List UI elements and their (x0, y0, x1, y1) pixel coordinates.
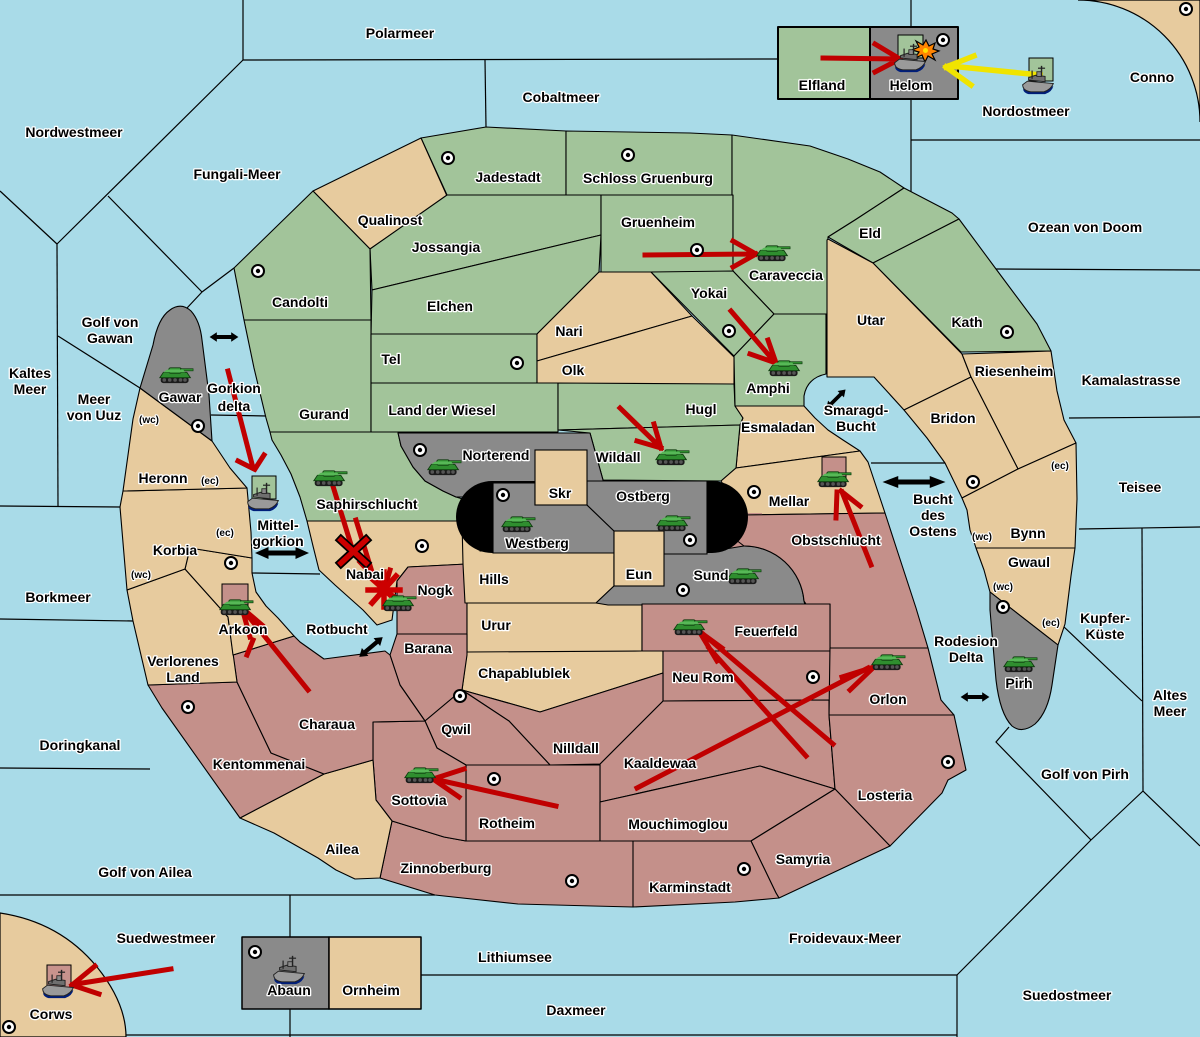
svg-text:Tel: Tel (381, 351, 400, 367)
svg-text:Bridon: Bridon (930, 410, 975, 426)
svg-text:Elchen: Elchen (427, 298, 473, 314)
svg-text:des: des (921, 507, 945, 523)
svg-text:Bynn: Bynn (1011, 525, 1046, 541)
svg-text:Norterend: Norterend (463, 447, 530, 463)
svg-text:Wildall: Wildall (596, 449, 641, 465)
svg-text:delta: delta (218, 398, 251, 414)
svg-text:Suedwestmeer: Suedwestmeer (117, 930, 216, 946)
svg-text:Gwaul: Gwaul (1008, 554, 1050, 570)
svg-text:Nari: Nari (555, 323, 582, 339)
svg-text:Daxmeer: Daxmeer (546, 1002, 606, 1018)
svg-text:Nabai: Nabai (346, 566, 384, 582)
svg-text:Saphirschlucht: Saphirschlucht (316, 496, 417, 512)
svg-text:Meer: Meer (14, 381, 47, 397)
svg-text:Esmaladan: Esmaladan (741, 419, 815, 435)
svg-text:Mellar: Mellar (769, 493, 810, 509)
svg-text:Ornheim: Ornheim (342, 982, 400, 998)
svg-text:Helom: Helom (890, 77, 933, 93)
svg-text:von Uuz: von Uuz (67, 407, 121, 423)
svg-text:Kath: Kath (951, 314, 982, 330)
svg-text:Barana: Barana (404, 640, 452, 656)
svg-text:Golf von Pirh: Golf von Pirh (1041, 766, 1129, 782)
svg-text:Kamalastrasse: Kamalastrasse (1082, 372, 1181, 388)
svg-text:Gorkion: Gorkion (207, 380, 261, 396)
svg-text:Mouchimoglou: Mouchimoglou (628, 816, 728, 832)
svg-text:Suedostmeer: Suedostmeer (1023, 987, 1112, 1003)
svg-text:Meer: Meer (1154, 703, 1187, 719)
svg-text:Nordostmeer: Nordostmeer (982, 103, 1070, 119)
svg-text:Ailea: Ailea (325, 841, 359, 857)
svg-text:Samyria: Samyria (776, 851, 831, 867)
svg-text:Cobaltmeer: Cobaltmeer (522, 89, 600, 105)
svg-text:Heronn: Heronn (139, 470, 188, 486)
svg-text:Ostens: Ostens (909, 523, 957, 539)
svg-text:Riesenheim: Riesenheim (975, 363, 1054, 379)
svg-text:Froidevaux-Meer: Froidevaux-Meer (789, 930, 902, 946)
svg-text:Rotbucht: Rotbucht (306, 621, 368, 637)
svg-text:Urur: Urur (481, 617, 511, 633)
svg-text:Bucht: Bucht (836, 418, 876, 434)
svg-text:Abaun: Abaun (267, 982, 311, 998)
svg-text:Rotheim: Rotheim (479, 815, 535, 831)
svg-text:(wc): (wc) (131, 570, 151, 581)
svg-text:Schloss Gruenburg: Schloss Gruenburg (583, 170, 713, 186)
svg-text:Sund: Sund (694, 567, 729, 583)
svg-text:Pirh: Pirh (1005, 675, 1032, 691)
svg-text:Gruenheim: Gruenheim (621, 214, 695, 230)
svg-text:Conno: Conno (1130, 69, 1174, 85)
svg-text:Gawar: Gawar (159, 389, 202, 405)
svg-text:Land der Wiesel: Land der Wiesel (388, 402, 495, 418)
svg-text:(ec): (ec) (201, 476, 219, 487)
svg-text:Sottovia: Sottovia (391, 792, 446, 808)
svg-text:Hills: Hills (479, 571, 509, 587)
svg-text:Hugl: Hugl (685, 401, 716, 417)
svg-text:Kaltes: Kaltes (9, 365, 51, 381)
svg-text:Doringkanal: Doringkanal (40, 737, 121, 753)
svg-text:Corws: Corws (30, 1006, 73, 1022)
svg-text:Eld: Eld (859, 225, 881, 241)
svg-text:Zinnoberburg: Zinnoberburg (401, 860, 492, 876)
svg-text:(wc): (wc) (972, 532, 992, 543)
svg-text:Borkmeer: Borkmeer (25, 589, 91, 605)
svg-text:Karminstadt: Karminstadt (649, 879, 731, 895)
svg-text:Arkoon: Arkoon (219, 621, 268, 637)
svg-text:Obstschlucht: Obstschlucht (791, 532, 881, 548)
svg-text:Jossangia: Jossangia (412, 239, 481, 255)
svg-text:Kaaldewaa: Kaaldewaa (624, 755, 697, 771)
svg-text:Mittel-: Mittel- (257, 517, 299, 533)
svg-text:Smaragd-: Smaragd- (824, 402, 889, 418)
svg-text:Orlon: Orlon (869, 691, 906, 707)
svg-text:Losteria: Losteria (858, 787, 913, 803)
svg-text:Gawan: Gawan (87, 330, 133, 346)
svg-text:Nordwestmeer: Nordwestmeer (25, 124, 123, 140)
svg-text:Delta: Delta (949, 649, 983, 665)
svg-text:Feuerfeld: Feuerfeld (734, 623, 797, 639)
svg-text:Jadestadt: Jadestadt (475, 169, 541, 185)
svg-text:Olk: Olk (562, 362, 585, 378)
svg-text:Qwil: Qwil (441, 721, 471, 737)
svg-text:Fungali-Meer: Fungali-Meer (193, 166, 281, 182)
svg-text:Amphi: Amphi (746, 380, 790, 396)
svg-text:(ec): (ec) (216, 528, 234, 539)
svg-text:Verlorenes: Verlorenes (147, 653, 219, 669)
svg-text:Ostberg: Ostberg (616, 488, 670, 504)
svg-text:Kupfer-: Kupfer- (1080, 610, 1130, 626)
svg-text:Bucht: Bucht (913, 491, 953, 507)
svg-text:Westberg: Westberg (505, 535, 569, 551)
svg-text:Utar: Utar (857, 312, 886, 328)
svg-text:Golf von Ailea: Golf von Ailea (98, 864, 192, 880)
svg-text:Candolti: Candolti (272, 294, 328, 310)
svg-text:Land: Land (166, 669, 199, 685)
svg-text:Kentommenai: Kentommenai (213, 756, 306, 772)
svg-text:Korbia: Korbia (153, 542, 198, 558)
svg-text:Charaua: Charaua (299, 716, 355, 732)
svg-text:Elfland: Elfland (799, 77, 846, 93)
svg-text:Skr: Skr (549, 485, 572, 501)
svg-text:Lithiumsee: Lithiumsee (478, 949, 552, 965)
svg-text:Yokai: Yokai (691, 285, 727, 301)
svg-text:(ec): (ec) (1051, 461, 1069, 472)
svg-text:Meer: Meer (78, 391, 111, 407)
svg-text:Küste: Küste (1086, 626, 1125, 642)
svg-text:Caraveccia: Caraveccia (749, 267, 823, 283)
svg-text:Chapablublek: Chapablublek (478, 665, 570, 681)
svg-text:Nilldall: Nilldall (553, 740, 599, 756)
svg-text:Ozean von Doom: Ozean von Doom (1028, 219, 1142, 235)
svg-text:Altes: Altes (1153, 687, 1187, 703)
svg-text:gorkion: gorkion (252, 533, 303, 549)
svg-text:Eun: Eun (626, 566, 652, 582)
svg-text:Golf von: Golf von (82, 314, 139, 330)
svg-text:Rodesion: Rodesion (934, 633, 998, 649)
svg-text:Nogk: Nogk (418, 582, 453, 598)
svg-text:Qualinost: Qualinost (358, 212, 423, 228)
svg-text:Polarmeer: Polarmeer (366, 25, 435, 41)
svg-text:(ec): (ec) (1042, 618, 1060, 629)
svg-text:Gurand: Gurand (299, 406, 349, 422)
svg-text:(wc): (wc) (139, 415, 159, 426)
svg-text:Neu Rom: Neu Rom (672, 669, 733, 685)
svg-text:(wc): (wc) (993, 582, 1013, 593)
svg-text:Teisee: Teisee (1119, 479, 1162, 495)
